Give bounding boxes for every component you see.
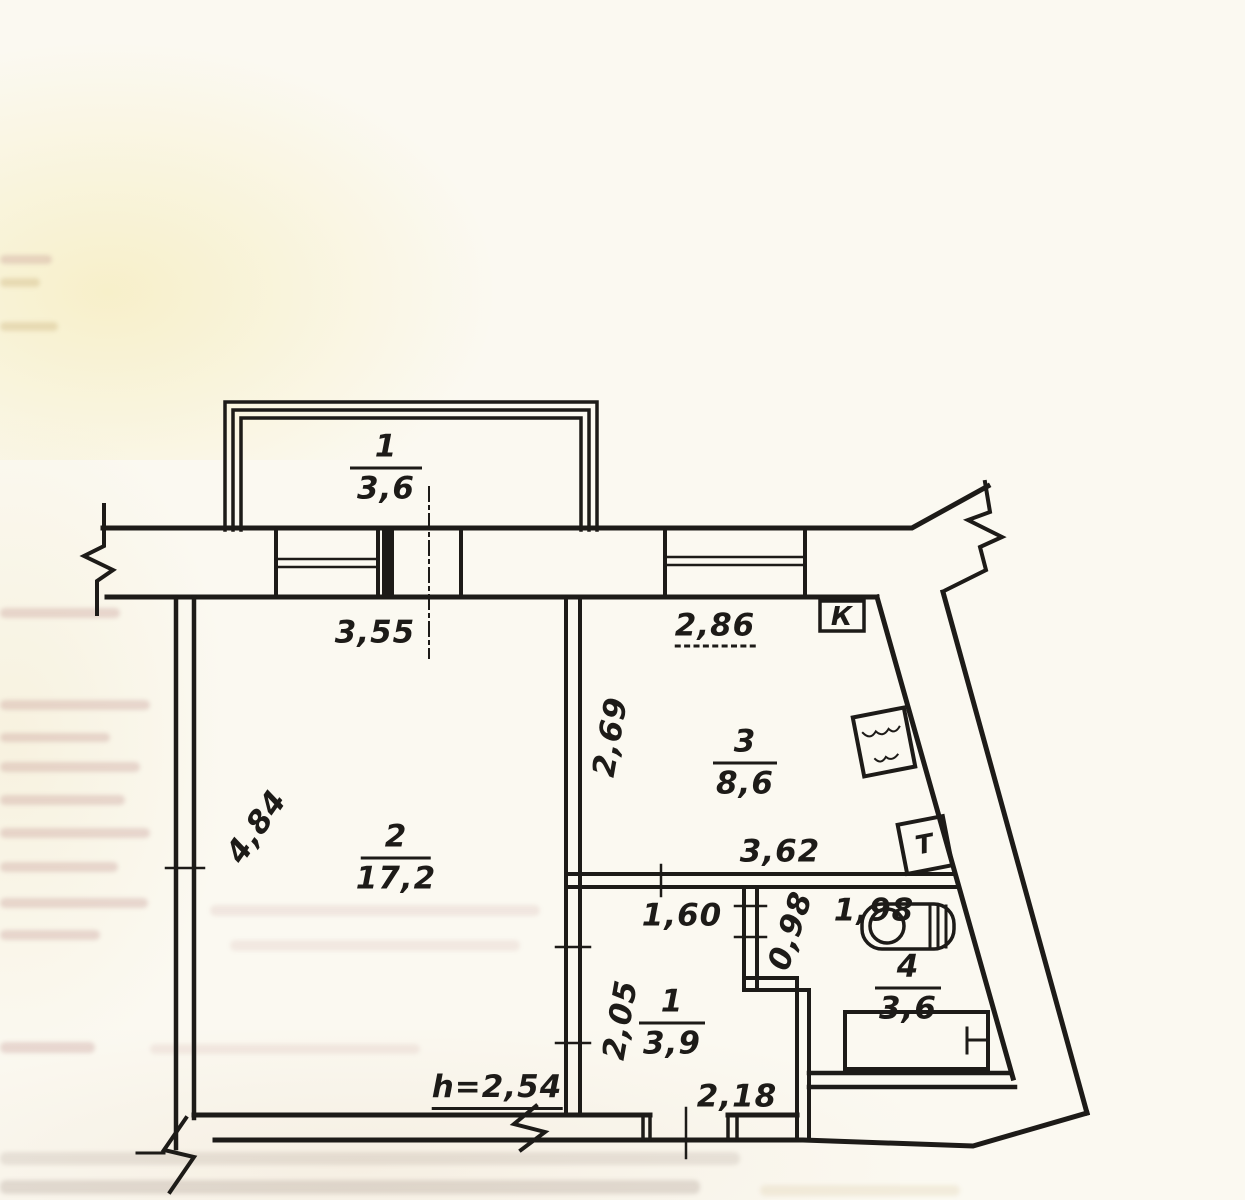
angled-exterior-wall (877, 592, 1087, 1113)
dim-ceiling-height: h=2,54 (432, 1072, 563, 1110)
left-wall (137, 597, 204, 1192)
interior-wall-horizontal (566, 865, 958, 896)
fraction-line (361, 857, 431, 860)
dim-hall-width: 1,60 (642, 901, 723, 932)
room-number: 1 (661, 987, 684, 1018)
scanned-floor-plan-page: { "plan": { "rooms": { "balcony": {"numb… (0, 0, 1245, 1200)
bottom-wall (194, 1106, 1087, 1158)
dim-hall-bottom-width: 2,18 (697, 1082, 778, 1113)
interior-wall-vertical (556, 597, 590, 1115)
fraction-line (350, 467, 422, 470)
fraction-line (875, 987, 941, 990)
wall-break-symbol (164, 1118, 194, 1192)
kitchen-marker-letter: К (831, 604, 853, 630)
window-symbol (276, 557, 805, 567)
room-area: 3,6 (879, 994, 937, 1025)
room-label-living: 2 17,2 (356, 822, 437, 895)
fraction-line (713, 762, 777, 765)
bathroom-bottom-wall (809, 1073, 1015, 1087)
room-label-kitchen: 3 8,6 (713, 727, 777, 800)
fraction-line (639, 1022, 705, 1025)
room-label-hall: 1 3,9 (639, 987, 705, 1060)
room-area: 17,2 (356, 864, 437, 895)
dim-kitchen-width: 3,62 (740, 837, 821, 868)
room-label-bathroom: 4 3,6 (875, 952, 941, 1025)
room-number: 1 (375, 432, 398, 463)
room-number: 4 (897, 952, 920, 983)
wall-break-symbol (946, 482, 1002, 590)
room-area: 8,6 (716, 769, 774, 800)
dim-toilet-width: 1,98 (834, 896, 915, 927)
room-area: 3,9 (643, 1029, 701, 1060)
top-wall (84, 482, 1002, 614)
stove-symbol (853, 708, 915, 777)
room-number: 2 (385, 822, 408, 853)
dim-kitchen-window: 2,86 (675, 611, 756, 648)
room-area: 3,6 (357, 474, 415, 505)
room-number: 3 (734, 727, 757, 758)
room-label-balcony: 1 3,6 (350, 432, 422, 505)
dim-balcony-width: 3,55 (335, 618, 416, 649)
door-jamb (382, 528, 394, 597)
